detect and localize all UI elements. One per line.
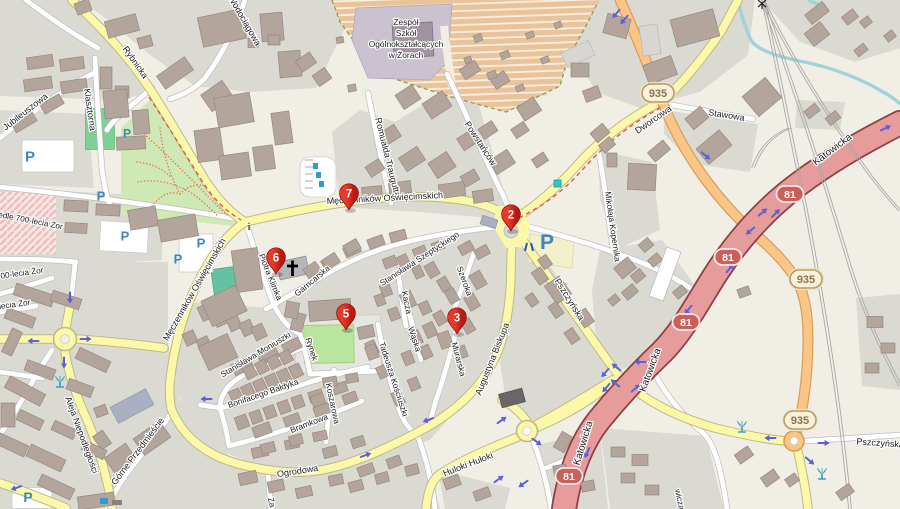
svg-text:81: 81 [722, 252, 734, 264]
svg-text:935: 935 [797, 274, 815, 286]
svg-text:P: P [123, 126, 131, 140]
svg-text:w Żorach: w Żorach [388, 50, 424, 60]
svg-text:P: P [25, 148, 35, 165]
svg-text:2: 2 [508, 209, 514, 221]
svg-text:P: P [197, 236, 206, 251]
svg-text:P: P [97, 189, 106, 204]
svg-text:81: 81 [563, 471, 575, 483]
svg-text:Ogólnokształcących: Ogólnokształcących [369, 39, 444, 49]
svg-text:81: 81 [784, 189, 796, 201]
svg-text:Zespół: Zespół [393, 17, 418, 27]
svg-text:81: 81 [680, 317, 692, 329]
svg-text:i: i [247, 221, 250, 233]
svg-text:7: 7 [346, 188, 352, 200]
svg-text:P: P [540, 231, 554, 254]
svg-text:5: 5 [343, 308, 350, 320]
svg-text:935: 935 [649, 88, 667, 100]
svg-text:6: 6 [273, 252, 279, 264]
svg-text:935: 935 [791, 415, 809, 427]
svg-text:P: P [174, 252, 183, 267]
svg-text:P: P [121, 229, 130, 244]
svg-text:P: P [23, 489, 32, 505]
svg-text:3: 3 [454, 312, 460, 324]
svg-text:Szkół: Szkół [396, 28, 417, 38]
